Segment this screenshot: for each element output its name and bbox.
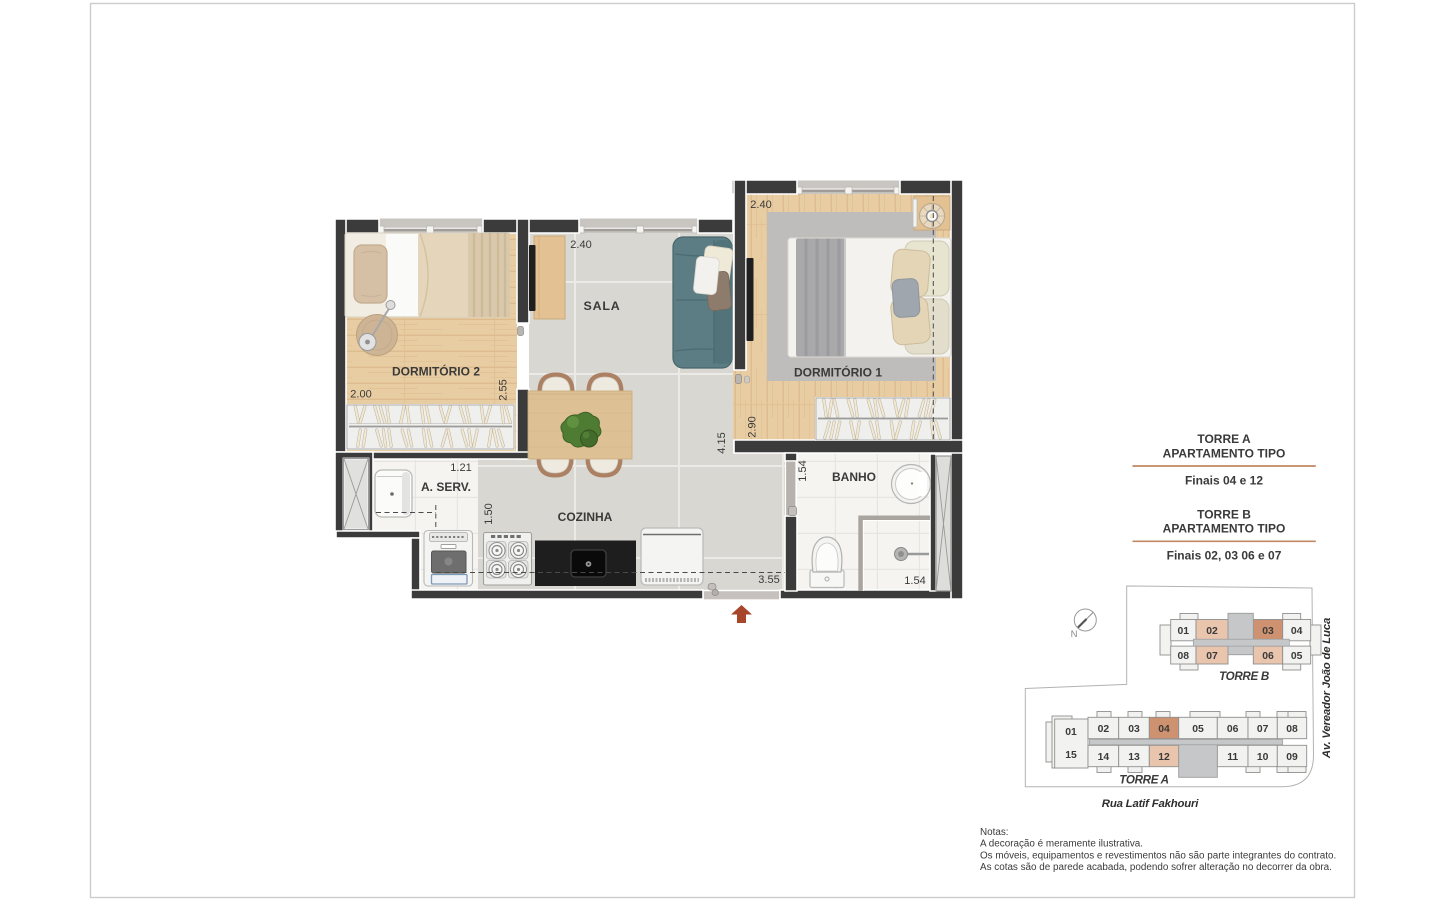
svg-text:1.50: 1.50 xyxy=(483,503,495,524)
svg-text:07: 07 xyxy=(1257,724,1269,735)
svg-text:2.40: 2.40 xyxy=(570,239,591,251)
svg-text:TORRE A: TORRE A xyxy=(1119,774,1168,787)
svg-text:05: 05 xyxy=(1291,651,1303,662)
svg-text:02: 02 xyxy=(1206,626,1218,637)
svg-text:Rua Latif Fakhouri: Rua Latif Fakhouri xyxy=(1102,798,1199,810)
svg-text:2.90: 2.90 xyxy=(747,416,759,437)
svg-text:03: 03 xyxy=(1128,724,1140,735)
svg-text:02: 02 xyxy=(1098,724,1110,735)
svg-text:DORMITÓRIO 2: DORMITÓRIO 2 xyxy=(392,364,480,379)
svg-text:12: 12 xyxy=(1158,752,1170,763)
svg-text:01: 01 xyxy=(1178,626,1190,637)
svg-text:APARTAMENTO TIPO: APARTAMENTO TIPO xyxy=(1163,522,1286,536)
svg-text:15: 15 xyxy=(1065,750,1077,761)
svg-text:TORRE A: TORRE A xyxy=(1197,432,1251,446)
svg-text:06: 06 xyxy=(1227,724,1239,735)
svg-text:13: 13 xyxy=(1128,752,1140,763)
svg-text:10: 10 xyxy=(1257,752,1269,763)
svg-text:DORMITÓRIO 1: DORMITÓRIO 1 xyxy=(794,365,882,380)
svg-text:1.54: 1.54 xyxy=(904,575,925,587)
svg-text:BANHO: BANHO xyxy=(832,470,876,484)
svg-text:Finais 02, 03 06 e 07: Finais 02, 03 06 e 07 xyxy=(1167,549,1282,563)
svg-text:04: 04 xyxy=(1158,724,1170,735)
svg-text:A. SERV.: A. SERV. xyxy=(421,480,471,494)
svg-text:SALA: SALA xyxy=(584,299,621,313)
svg-text:11: 11 xyxy=(1227,752,1238,763)
svg-text:3.55: 3.55 xyxy=(758,574,779,586)
svg-text:09: 09 xyxy=(1286,752,1298,763)
svg-text:4.15: 4.15 xyxy=(716,432,728,453)
svg-text:As cotas são de parede acabada: As cotas são de parede acabada, podendo … xyxy=(980,862,1332,873)
svg-text:COZINHA: COZINHA xyxy=(558,510,613,524)
svg-text:1.21: 1.21 xyxy=(450,462,471,474)
svg-text:TORRE B: TORRE B xyxy=(1197,508,1251,522)
svg-text:06: 06 xyxy=(1262,651,1274,662)
svg-text:05: 05 xyxy=(1192,724,1204,735)
svg-text:03: 03 xyxy=(1262,626,1274,637)
svg-text:N: N xyxy=(1071,629,1078,640)
svg-text:07: 07 xyxy=(1206,651,1218,662)
svg-text:2.00: 2.00 xyxy=(350,389,371,401)
svg-text:Finais 04 e 12: Finais 04 e 12 xyxy=(1185,474,1263,488)
svg-text:APARTAMENTO TIPO: APARTAMENTO TIPO xyxy=(1163,447,1286,461)
svg-text:Av. Vereador João de Luca: Av. Vereador João de Luca xyxy=(1321,618,1333,759)
svg-text:2.40: 2.40 xyxy=(750,199,771,211)
svg-text:01: 01 xyxy=(1065,727,1077,738)
svg-text:1.54: 1.54 xyxy=(797,460,809,481)
svg-text:TORRE B: TORRE B xyxy=(1219,670,1269,683)
svg-text:Notas:: Notas: xyxy=(980,827,1009,838)
svg-text:04: 04 xyxy=(1291,626,1303,637)
svg-text:14: 14 xyxy=(1098,752,1110,763)
svg-text:A decoração é meramente ilustr: A decoração é meramente ilustrativa. xyxy=(980,839,1143,850)
svg-text:08: 08 xyxy=(1178,651,1190,662)
svg-text:08: 08 xyxy=(1286,724,1298,735)
svg-text:2.55: 2.55 xyxy=(498,379,510,400)
svg-text:Os móveis, equipamentos e reve: Os móveis, equipamentos e revestimentos … xyxy=(980,850,1336,861)
